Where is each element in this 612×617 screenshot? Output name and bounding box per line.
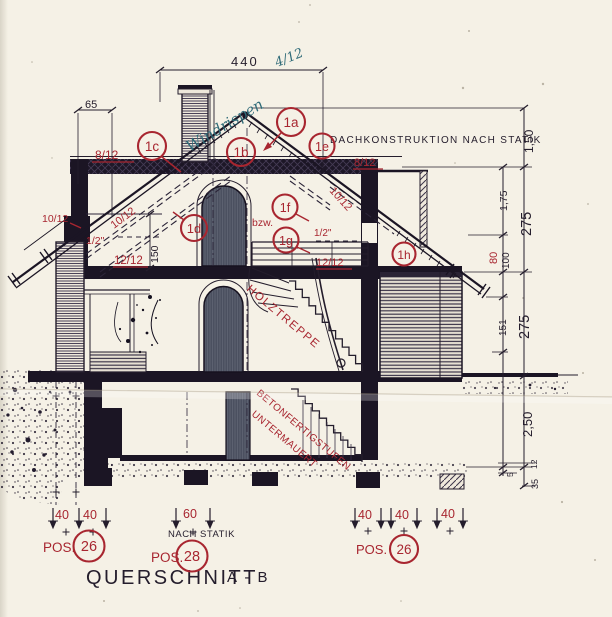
slope-8-12-right: 8/12 xyxy=(354,157,375,169)
dim-40-left-2: 40 xyxy=(83,508,97,522)
dim-60-mid: 60 xyxy=(183,507,197,521)
left-footing xyxy=(84,468,112,486)
slope-12-12-right: 12/12 xyxy=(316,257,344,269)
pos-right-num: 26 xyxy=(396,542,411,557)
callout-1d: 1d xyxy=(187,221,201,236)
dim-1-50: 1,50 xyxy=(522,129,536,153)
slope-10-12-outer: 10/12 xyxy=(42,213,68,225)
dim-5: 5 xyxy=(505,472,515,477)
callout-1b: 1b xyxy=(233,145,248,160)
paper-background xyxy=(0,0,612,617)
slope-12-12-left: 12/12 xyxy=(114,255,143,267)
pos-right-label: POS. xyxy=(356,542,387,557)
roof-note: DACHKONSTRUKTION NACH STATIK xyxy=(330,135,542,146)
pos-mid-label: POS. xyxy=(151,550,183,565)
callout-1e: 1e xyxy=(315,140,329,154)
dim-40-right-3: 40 xyxy=(441,507,455,521)
dim-12: 12 xyxy=(529,459,539,469)
callout-1g: 1g xyxy=(279,234,293,248)
left-exterior-wall xyxy=(56,242,84,372)
dim-40-right-2: 40 xyxy=(395,508,409,522)
right-footing xyxy=(356,472,380,488)
slope-8-12-left: 8/12 xyxy=(95,148,119,162)
pos-left-num: 26 xyxy=(81,539,97,555)
center-footing xyxy=(184,470,208,485)
half-inch-left: 1/2" xyxy=(86,235,105,247)
architectural-drawing: DACHKONSTRUKTION NACH STATIK 440 65 150 … xyxy=(0,0,612,617)
dim-440: 440 xyxy=(231,54,259,69)
section-drawing-canvas: DACHKONSTRUKTION NACH STATIK 440 65 150 … xyxy=(0,0,612,617)
attic-arched-door xyxy=(202,186,246,266)
half-inch-right: 1/2" xyxy=(314,228,332,239)
dim-65: 65 xyxy=(85,99,97,111)
louver-sill xyxy=(90,352,146,372)
paper-edge-shadow xyxy=(0,0,8,617)
bzw-label: bzw. xyxy=(252,217,273,229)
right-basement-wall xyxy=(361,378,378,460)
basement-door xyxy=(226,392,250,460)
callout-1h: 1h xyxy=(397,248,410,262)
annex-footing xyxy=(440,474,464,489)
callout-1c: 1c xyxy=(145,139,160,154)
dim-275-lower: 275 xyxy=(517,315,533,339)
right-exterior-wall xyxy=(361,166,378,378)
dim-151: 151 xyxy=(498,319,509,336)
first-floor-arched-door xyxy=(204,287,243,373)
callout-1f: 1f xyxy=(280,201,291,215)
section-mark: A - B xyxy=(227,569,270,586)
dim-35: 35 xyxy=(530,479,540,489)
statics-note: NACH STATIK xyxy=(168,529,235,540)
pos-mid-num: 28 xyxy=(184,549,200,565)
dim-80-red: 80 xyxy=(488,252,500,264)
dim-275-upper: 275 xyxy=(519,212,535,236)
dim-150: 150 xyxy=(149,245,161,263)
dim-1-75: 1,75 xyxy=(498,190,510,211)
dim-40-right-1: 40 xyxy=(358,508,372,522)
annex-post xyxy=(420,171,427,247)
dim-100: 100 xyxy=(501,252,512,269)
right-annex xyxy=(380,272,462,378)
dim-40-left-1: 40 xyxy=(55,508,69,522)
dim-2-50: 2,50 xyxy=(520,412,535,437)
pos-left-label: POS. xyxy=(43,540,75,555)
callout-1a: 1a xyxy=(283,115,299,130)
